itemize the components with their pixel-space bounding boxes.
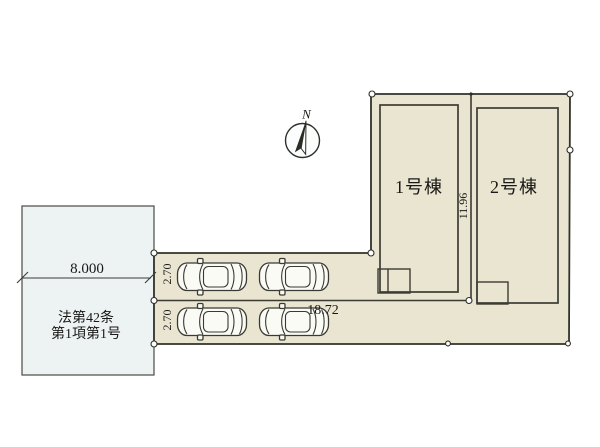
lot-divider-length-dimension: 11.96 [456, 193, 470, 220]
survey-point-marker [151, 341, 157, 347]
parking-row-1-width-dimension: 2.70 [160, 264, 174, 285]
survey-point-marker [369, 91, 375, 97]
survey-point-marker [151, 250, 157, 256]
car-icon [260, 259, 329, 296]
north-label: N [301, 107, 312, 122]
building-2-label: 2号棟 [490, 177, 538, 197]
car-icon [178, 304, 247, 341]
survey-point-marker [567, 147, 573, 153]
survey-point-marker [368, 250, 374, 256]
site-plan-canvas: 1号棟 2号棟 2.70 2.70 18.72 11.96 8.000 法第42… [0, 0, 600, 447]
car-icon [178, 259, 247, 296]
survey-point-marker [567, 91, 573, 97]
survey-point-marker [466, 298, 472, 304]
survey-point-marker [469, 92, 472, 95]
lot-boundary-length-dimension: 18.72 [307, 303, 339, 318]
road-area [22, 206, 154, 375]
site-plan: 1号棟 2号棟 2.70 2.70 18.72 11.96 8.000 法第42… [0, 0, 600, 447]
site-boundary [154, 94, 570, 344]
survey-point-marker [446, 341, 451, 346]
survey-point-marker [151, 298, 157, 304]
parking-row-2-width-dimension: 2.70 [160, 310, 174, 331]
road-designation-line2: 第1項第1号 [51, 325, 121, 342]
building-1-label: 1号棟 [395, 177, 443, 197]
road-designation-line1: 法第42条 [58, 309, 114, 326]
road-width-dimension: 8.000 [70, 261, 104, 277]
survey-point-marker [566, 341, 571, 346]
compass-icon: N [286, 107, 320, 158]
